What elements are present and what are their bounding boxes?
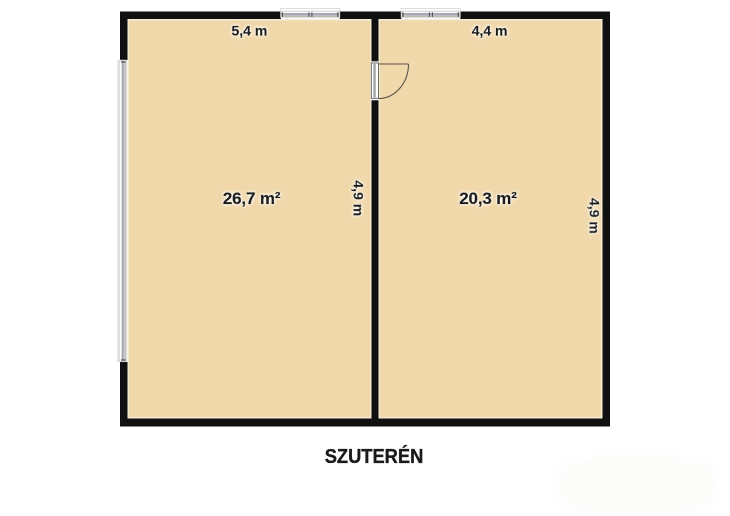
- svg-text:20,3 m²: 20,3 m²: [459, 189, 517, 208]
- svg-text:26,7 m²: 26,7 m²: [223, 189, 281, 208]
- svg-text:4,9 m: 4,9 m: [586, 198, 602, 234]
- svg-text:SZUTERÉN: SZUTERÉN: [325, 445, 424, 468]
- svg-text:4,9 m: 4,9 m: [351, 180, 367, 216]
- svg-text:4,4 m: 4,4 m: [472, 23, 508, 39]
- svg-text:5,4 m: 5,4 m: [231, 23, 267, 39]
